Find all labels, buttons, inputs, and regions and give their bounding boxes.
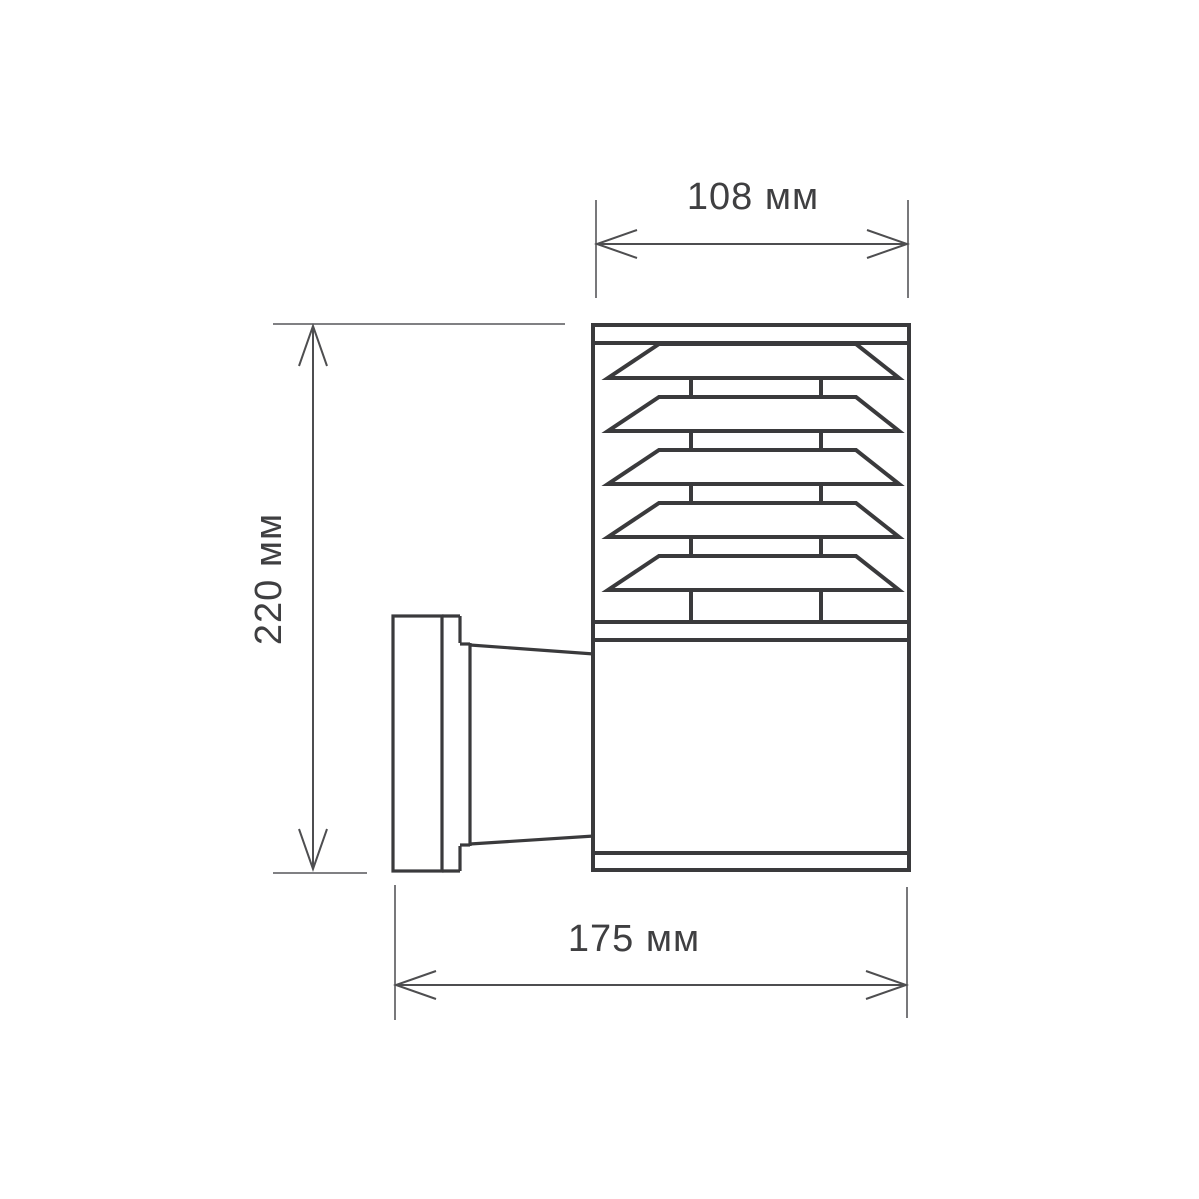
dimension-depth: 175 мм (395, 885, 907, 1020)
lamp-outer-casing (593, 325, 909, 870)
louver-slat (608, 556, 899, 590)
louver-slat (608, 397, 899, 431)
lamp-dimension-diagram: 108 мм 220 мм 175 мм (0, 0, 1199, 1199)
dimension-height-label: 220 мм (248, 513, 290, 645)
wall-mount (393, 616, 594, 871)
dimension-depth-label: 175 мм (568, 918, 700, 960)
louver-slat (608, 503, 899, 537)
lamp-body (593, 325, 909, 870)
wall-plate (393, 616, 442, 871)
dimension-height: 220 мм (248, 324, 565, 873)
mounting-arm (460, 643, 594, 846)
technical-drawing-page: 108 мм 220 мм 175 мм (0, 0, 1199, 1199)
louver-slat (608, 450, 899, 484)
louver-grille (608, 344, 899, 622)
arm-top-slant (470, 645, 594, 654)
dimension-width: 108 мм (596, 176, 908, 298)
arm-bottom-slant (470, 836, 594, 844)
louver-slat (608, 344, 899, 378)
dimension-width-label: 108 мм (687, 176, 819, 218)
wall-plate-flange (442, 616, 460, 871)
